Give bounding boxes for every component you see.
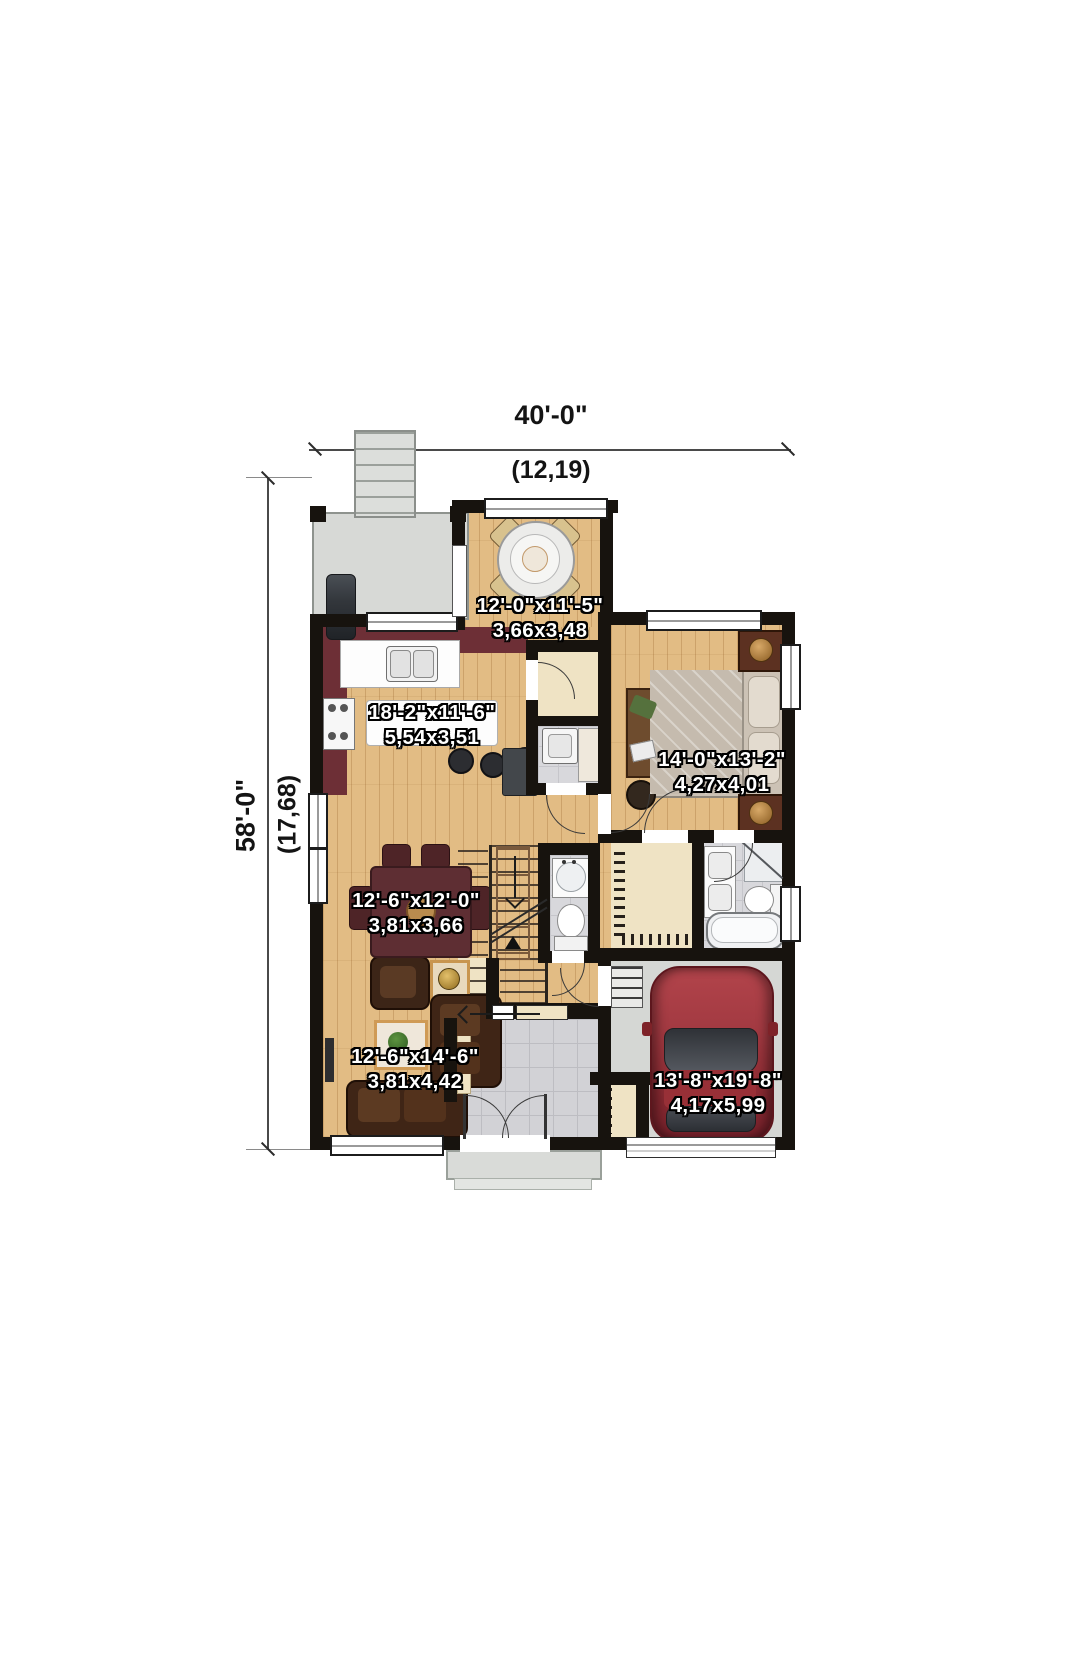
powder-sink	[556, 862, 586, 892]
bar-stool	[448, 748, 474, 774]
bbq-grill-icon	[326, 574, 356, 640]
toilet-tank	[554, 936, 588, 951]
room-size-metric: 3,81x3,66	[352, 913, 480, 938]
pantry-door-opening	[526, 660, 538, 700]
room-label-dining: 12'-6"x12'-0" 3,81x3,66	[352, 888, 480, 938]
garage-entry-opening	[598, 966, 611, 1006]
window	[366, 612, 458, 632]
faucet-dot	[562, 860, 566, 864]
window	[308, 793, 328, 849]
dim-extension-line	[246, 1149, 312, 1150]
room-label-living: 12'-6"x14'-6" 3,81x4,42	[351, 1044, 479, 1094]
bathtub-inner	[711, 917, 778, 943]
room-size-imperial: 12'-0"x11'-5"	[477, 593, 604, 618]
toilet-bowl	[744, 886, 774, 914]
window	[308, 848, 328, 904]
kitchen-sink-basin	[413, 650, 434, 678]
room-size-metric: 4,27x4,01	[658, 772, 786, 797]
closet-hanger-rail	[614, 852, 625, 940]
floor-plan: 40'-0" (12,19) 58'-0" (17,68)	[0, 0, 1080, 1669]
room-size-metric: 5,54x3,51	[369, 725, 496, 750]
room-size-imperial: 12'-6"x12'-0"	[352, 888, 480, 913]
burner	[328, 704, 336, 712]
porch-step	[454, 1178, 592, 1190]
dim-width-imperial: 40'-0"	[441, 400, 661, 431]
dim-depth-imperial: 58'-0"	[231, 756, 262, 876]
burner	[328, 732, 336, 740]
lamp-icon	[749, 801, 773, 825]
car-mirror	[642, 1022, 652, 1036]
deck-stairs	[354, 430, 416, 518]
wall	[486, 958, 499, 1005]
dinette-centerpiece	[522, 546, 548, 572]
garage-door	[626, 1137, 776, 1158]
room-size-imperial: 14'-0"x13'-2"	[658, 747, 786, 772]
pillow	[748, 676, 780, 728]
bedroom-door-opening	[598, 794, 611, 834]
washer-door	[548, 734, 572, 758]
room-size-metric: 4,17x5,99	[654, 1093, 782, 1118]
armchair-cushion	[380, 966, 416, 998]
window	[330, 1135, 444, 1156]
dim-line-left	[267, 478, 269, 1150]
room-label-dinette: 12'-0"x11'-5" 3,66x3,48	[477, 593, 604, 643]
toilet-bowl	[557, 904, 585, 938]
laundry-door-opening	[546, 783, 586, 795]
wall	[588, 843, 600, 963]
wall	[692, 840, 704, 952]
wall	[536, 716, 602, 726]
room-size-imperial: 18'-2"x11'-6"	[369, 700, 496, 725]
faucet-dot	[572, 860, 576, 864]
room-size-metric: 3,81x4,42	[351, 1069, 479, 1094]
car-mirror	[768, 1022, 778, 1036]
bath-sink	[708, 884, 732, 911]
powder-door-opening	[552, 951, 584, 963]
dim-extension-line	[246, 477, 312, 478]
front-porch	[446, 1150, 602, 1180]
basement-arrow-line	[470, 1013, 540, 1015]
room-label-garage: 13'-8"x19'-8" 4,17x5,99	[654, 1068, 782, 1118]
burner	[340, 732, 348, 740]
window	[646, 610, 762, 631]
room-label-kitchen: 18'-2"x11'-6" 5,54x3,51	[369, 700, 496, 750]
window	[780, 886, 801, 942]
window	[780, 644, 801, 710]
room-size-imperial: 12'-6"x14'-6"	[351, 1044, 479, 1069]
kitchen-sink-basin	[390, 650, 411, 678]
room-label-bedroom: 14'-0"x13'-2" 4,27x4,01	[658, 747, 786, 797]
deck-post	[310, 506, 326, 522]
dim-depth-metric: (17,68)	[274, 755, 303, 875]
room-size-metric: 3,66x3,48	[477, 618, 604, 643]
burner	[340, 704, 348, 712]
bath-door-opening	[714, 830, 754, 843]
window	[484, 498, 608, 519]
table-lamp-icon	[438, 968, 460, 990]
patio-door	[452, 545, 467, 617]
lamp-icon	[749, 638, 773, 662]
stair-arrow-up-icon	[505, 936, 521, 949]
tv-icon	[325, 1038, 334, 1082]
room-size-imperial: 13'-8"x19'-8"	[654, 1068, 782, 1093]
closet-hanger-rail	[622, 934, 688, 945]
stair-treads-basement	[500, 958, 546, 1005]
dim-width-metric: (12,19)	[441, 456, 661, 485]
garage-entry-steps	[611, 966, 643, 1008]
